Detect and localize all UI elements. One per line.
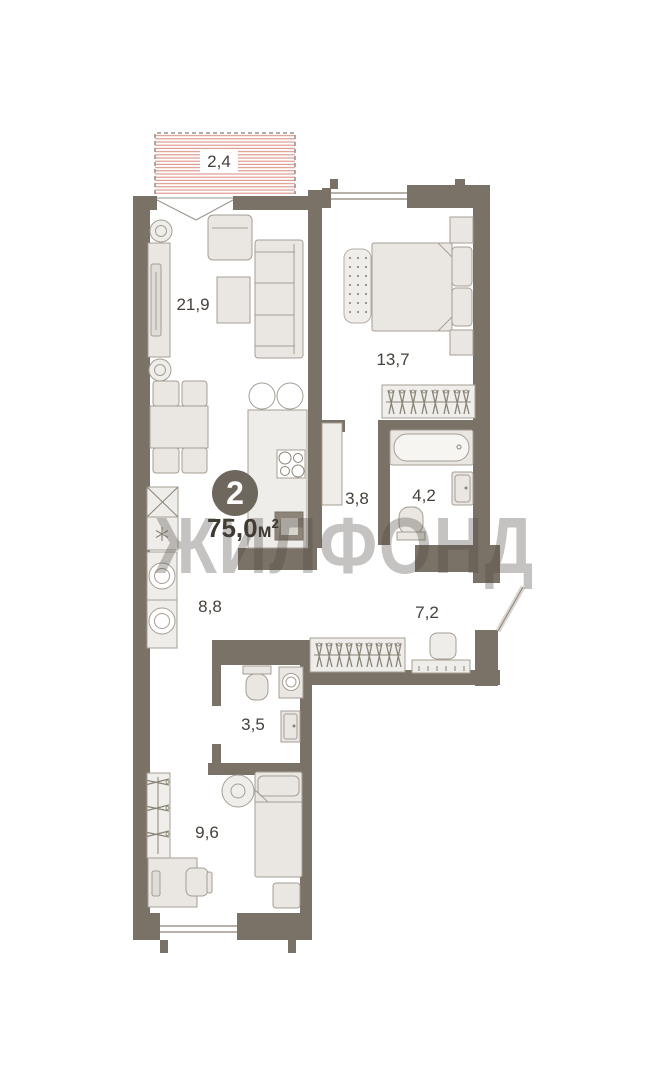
stool (430, 633, 456, 659)
bathtub-inner (394, 434, 469, 461)
dining-chair-4 (182, 448, 207, 473)
wall-top-mid (233, 196, 310, 210)
watermark: ЖИЛФОНД (154, 501, 535, 590)
kitchen-sink-bowl-1 (249, 383, 275, 409)
wall-toilet-top (212, 640, 312, 665)
wall-toilet-left-a (212, 665, 221, 706)
plant-bottom (149, 359, 171, 381)
hall-furniture (322, 423, 342, 505)
dining-chair-3 (153, 448, 179, 473)
wall-bottom-right (237, 913, 312, 940)
armchair (208, 215, 252, 260)
bedroom2-furniture (145, 772, 302, 908)
wall-right-outer (473, 185, 490, 545)
toilet-room-sink-tap (293, 725, 296, 728)
nightstand-bedroom2 (273, 883, 300, 908)
single-bed-pillow (258, 776, 299, 796)
pouf (222, 775, 254, 807)
hall-cabinet (322, 423, 342, 505)
wall-nub-b (455, 179, 465, 189)
nightstand-top (450, 217, 473, 243)
room-area-label-bedroom1: 13,7 (376, 350, 409, 369)
nightstand-bottom (450, 330, 473, 355)
room-area-label-hallway: 7,2 (415, 603, 439, 622)
dining-table (150, 406, 208, 448)
double-bed (372, 243, 452, 331)
dining-chair-2 (182, 381, 207, 406)
room-area-label-toilet: 3,5 (241, 715, 265, 734)
washer-door-2 (149, 608, 175, 634)
wall-top-left (133, 196, 157, 210)
entrance-door-edge (498, 587, 523, 631)
wall-bottom-nub-b (288, 940, 296, 953)
dining-chair-1 (153, 381, 179, 406)
room-area-label-bedroom2: 9,6 (195, 823, 219, 842)
plant-top (150, 220, 172, 242)
hallway-furniture (310, 633, 470, 673)
wall-bottom-left (133, 913, 160, 940)
kitchen-sink-bowl-2 (277, 383, 303, 409)
toilet-bowl-2 (246, 674, 268, 700)
room-area-label-balcony: 2,4 (207, 152, 231, 171)
wall-nub-a (330, 179, 338, 189)
wall-toilet-left-b (212, 744, 221, 763)
toilet-tank-2 (243, 666, 271, 674)
wall-bottom-nub-a (160, 940, 168, 953)
office-chair-back (207, 872, 212, 893)
washing-machine-door (283, 674, 300, 691)
balcony: 2,4 (155, 133, 295, 194)
office-chair-seat (186, 868, 208, 896)
bathroom-sink-tap (465, 487, 468, 490)
bedroom1-furniture (344, 217, 475, 418)
pillow-2 (452, 288, 472, 326)
pillow-1 (452, 247, 472, 286)
wall-top-bedroom-left (322, 188, 331, 208)
coffee-table (217, 277, 250, 323)
desk-monitor (152, 871, 160, 896)
wall-living-bedroom-divider (308, 190, 322, 548)
sofa (255, 240, 303, 358)
floor-plan: 2,4 (0, 0, 657, 1080)
room-area-label-kitchen: 8,8 (198, 597, 222, 616)
shoe-rack (412, 660, 470, 673)
entrance-door (498, 587, 523, 631)
room-area-label-living: 21,9 (176, 295, 209, 314)
